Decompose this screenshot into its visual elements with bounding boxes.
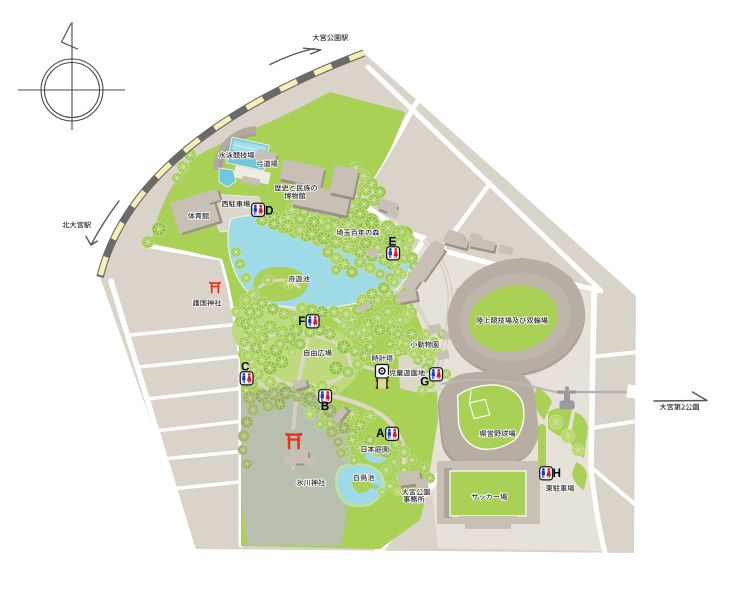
svg-text:E: E [389, 236, 397, 248]
svg-text:F: F [298, 316, 305, 328]
svg-text:C: C [241, 361, 249, 373]
svg-text:H: H [553, 468, 561, 480]
svg-text:A: A [376, 428, 384, 440]
svg-text:G: G [420, 377, 429, 389]
svg-text:D: D [265, 206, 273, 218]
svg-text:B: B [321, 401, 329, 413]
